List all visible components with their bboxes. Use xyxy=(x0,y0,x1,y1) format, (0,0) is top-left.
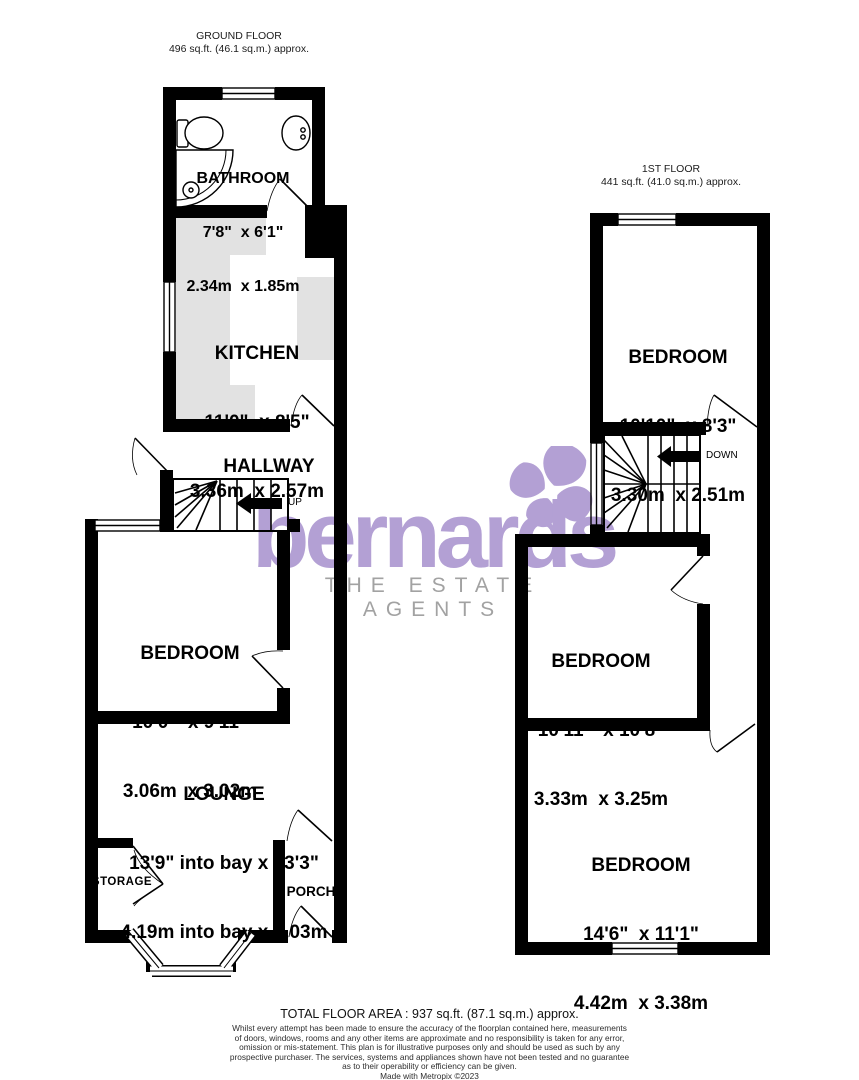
metropix-credit: Made with Metropix ©2023 xyxy=(0,1072,859,1080)
bathroom-window xyxy=(222,88,275,99)
up-label: UP xyxy=(288,497,318,508)
total-floor-area: TOTAL FLOOR AREA : 937 sq.ft. (87.1 sq.m… xyxy=(0,1007,859,1021)
porch-label: PORCH xyxy=(261,884,361,899)
storage-text: STORAGE xyxy=(92,876,152,888)
room-name: KITCHEN xyxy=(137,342,377,365)
up-text: UP xyxy=(288,497,302,508)
hallway-label: HALLWAY xyxy=(179,456,359,478)
room-dim-imperial: 10'11" x 10'8" xyxy=(481,719,721,742)
kitchen-label: KITCHEN 11'0" x 8'5" 3.36m x 2.57m xyxy=(137,296,377,549)
total-floor-area-text: TOTAL FLOOR AREA : 937 sq.ft. (87.1 sq.m… xyxy=(280,1007,579,1021)
room-dim-imperial: 11'0" x 8'5" xyxy=(137,411,377,434)
room-name: LOUNGE xyxy=(84,783,364,806)
lounge-label: LOUNGE 13'9" into bay x 13'3" 4.19m into… xyxy=(84,737,364,990)
storage-label: STORAGE xyxy=(72,876,172,888)
room-dim-metric: 4.19m into bay x 4.03m xyxy=(84,921,364,944)
down-text: DOWN xyxy=(706,450,738,461)
bedroom-top-window xyxy=(618,214,676,225)
room-dim-metric: 3.30m x 2.51m xyxy=(558,484,798,507)
ground-floor-header: GROUND FLOOR 496 sq.ft. (46.1 sq.m.) app… xyxy=(129,30,349,55)
first-floor-area: 441 sq.ft. (41.0 sq.m.) approx. xyxy=(561,176,781,189)
down-label: DOWN xyxy=(706,450,752,461)
room-name: BEDROOM xyxy=(481,650,721,673)
room-dim-imperial: 13'9" into bay x 13'3" xyxy=(84,852,364,875)
room-dim-imperial: 10'0" x 9'11" xyxy=(70,711,310,734)
room-name: BEDROOM xyxy=(70,642,310,665)
ground-floor-title: GROUND FLOOR xyxy=(129,30,349,43)
room-dim-imperial: 10'10" x 8'3" xyxy=(558,415,798,438)
room-dim-imperial: 14'6" x 11'1" xyxy=(521,923,761,946)
first-floor-header: 1ST FLOOR 441 sq.ft. (41.0 sq.m.) approx… xyxy=(561,163,781,188)
room-dim-imperial: 7'8" x 6'1" xyxy=(123,224,363,242)
bedroom-middle-door xyxy=(671,556,703,604)
floorplan-page: GROUND FLOOR 496 sq.ft. (46.1 sq.m.) app… xyxy=(0,0,859,1080)
hallway-text: HALLWAY xyxy=(223,456,314,477)
disclaimer: Whilst every attempt has been made to en… xyxy=(0,1024,859,1080)
first-bedroom-top-label: BEDROOM 10'10" x 8'3" 3.30m x 2.51m xyxy=(558,300,798,553)
room-name: BATHROOM xyxy=(123,170,363,188)
room-name: BEDROOM xyxy=(521,854,761,877)
room-dim-metric: 3.36m x 2.57m xyxy=(137,480,377,503)
ground-floor-area: 496 sq.ft. (46.1 sq.m.) approx. xyxy=(129,43,349,56)
porch-text: PORCH xyxy=(287,884,336,899)
room-name: BEDROOM xyxy=(558,346,798,369)
room-dim-metric: 2.34m x 1.85m xyxy=(123,278,363,296)
first-floor-title: 1ST FLOOR xyxy=(561,163,781,176)
